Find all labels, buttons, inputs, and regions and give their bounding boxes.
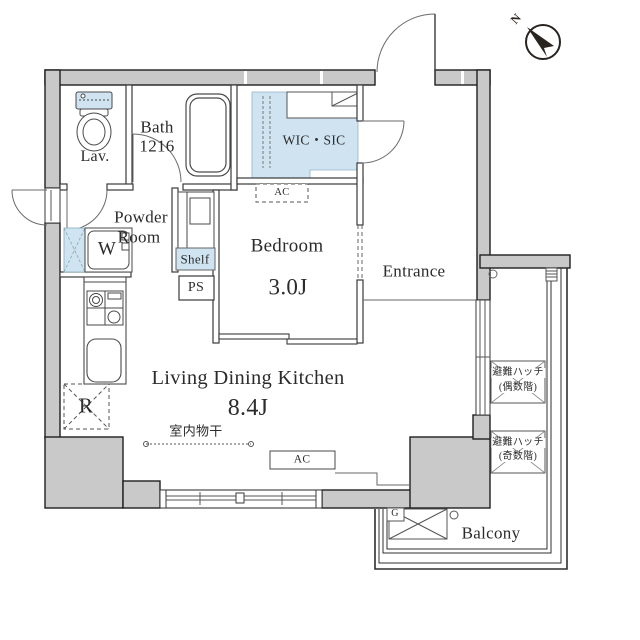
hatch-even-label-2: (偶数階)	[498, 383, 538, 393]
ac-label-ldk: AC	[294, 454, 311, 466]
wall-left-upper	[45, 70, 60, 188]
balcony-drain-icon	[546, 268, 557, 281]
room-label-powder-1: Powder	[114, 209, 168, 226]
wall-left-lower	[45, 223, 60, 438]
ps-label: PS	[188, 281, 204, 295]
bedroom-ldk-sliding-door	[219, 334, 357, 344]
water-heater-label: G	[391, 509, 399, 519]
wall-right-lower-stub	[473, 415, 490, 439]
indoor-drying-rail-icon	[144, 442, 254, 447]
hatch-odd-label-1: 避難ハッチ	[491, 438, 545, 448]
wall-corner-right-block	[410, 437, 490, 508]
lav-door	[67, 190, 107, 230]
hatch-odd-label-2: (奇数階)	[498, 452, 538, 462]
compass-icon	[526, 25, 560, 59]
room-label-powder-2: Room	[118, 229, 161, 246]
floor-plan: Lav. Bath 1216 Powder Room WIC・SIC Bedro…	[0, 0, 640, 640]
washer-label: W	[98, 240, 116, 259]
wall-balcony-stub	[480, 255, 570, 268]
room-size-bath: 1216	[139, 138, 174, 155]
wall-bottom-right	[322, 490, 412, 508]
ac-label-bedroom: AC	[274, 188, 289, 199]
powder-cabinet-icon	[178, 192, 214, 250]
wall-top-left	[45, 70, 375, 85]
window-east	[476, 300, 490, 415]
floor-step-line	[335, 473, 410, 485]
window-lock-icon	[236, 493, 244, 503]
hatch-even-label-1: 避難ハッチ	[491, 368, 545, 378]
indoor-drying-label: 室内物干	[169, 425, 222, 438]
room-label-wic: WIC・SIC	[283, 133, 346, 147]
door-swings	[67, 14, 435, 230]
bathtub-icon	[186, 94, 230, 176]
wall-corner-left-step	[123, 481, 160, 508]
sink-icon	[87, 339, 121, 382]
door-left-service	[12, 188, 60, 225]
shelf-label: Shelf	[181, 253, 210, 266]
room-label-lav: Lav.	[80, 149, 109, 165]
room-size-ldk: 8.4J	[228, 396, 269, 420]
room-label-balcony: Balcony	[462, 525, 521, 542]
refrigerator-label: R	[79, 396, 93, 417]
wall-corner-left-block	[45, 437, 123, 508]
wic-door	[362, 121, 404, 163]
window-south	[160, 490, 322, 508]
room-label-bath: Bath	[140, 119, 173, 136]
floor-plan-drawing	[0, 0, 640, 640]
room-label-ldk: Living Dining Kitchen	[151, 368, 344, 389]
room-label-entrance: Entrance	[383, 263, 446, 280]
room-label-bedroom: Bedroom	[251, 237, 324, 256]
front-door	[377, 14, 435, 72]
toilet-icon	[76, 92, 112, 151]
bedroom-sliding-door	[358, 225, 362, 280]
room-size-bedroom: 3.0J	[269, 276, 308, 299]
washer-pan-icon	[64, 228, 85, 272]
